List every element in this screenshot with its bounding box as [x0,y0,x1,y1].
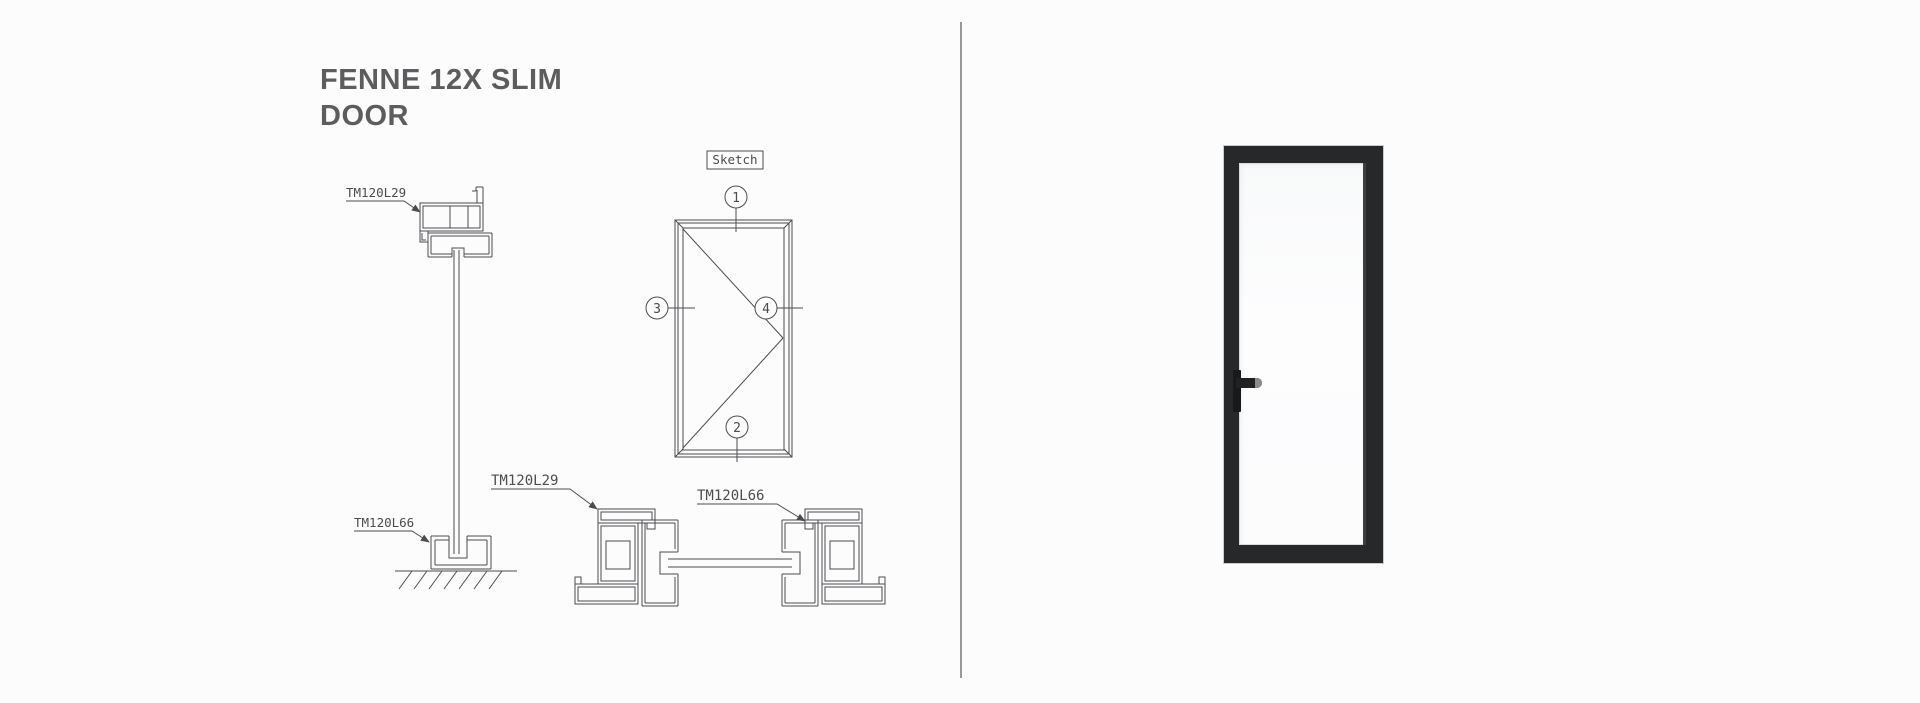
catalog-page: { "page": { "title_line1": "FENNE 12X SL… [0,0,1920,703]
horizontal-frame-profile-label: TM120L29 [491,473,558,489]
glass-pane-section [454,250,459,554]
callout-2: 2 [733,421,741,436]
ground-hatch [395,571,517,589]
vertical-floor-profile-label: TM120L66 [354,515,414,530]
right-frame-profile-section [805,509,885,604]
left-leaf-profile-section [642,520,678,606]
leader-line [354,531,429,542]
callout-4: 4 [762,302,770,317]
floor-channel-section [431,536,491,569]
product-door-image [1224,146,1383,563]
horizontal-section-drawing: TM120L29 TM120L66 [491,473,885,606]
leader-line [346,201,420,212]
callout-1: 1 [732,191,740,206]
left-frame-profile-section [575,509,655,604]
sketch-label: Sketch [712,152,757,167]
door-glass-panel [1239,163,1364,545]
door-frame-bevel [1363,163,1366,545]
leaf-top-profile-section [428,233,492,257]
sketch-diagram: Sketch 1 3 4 2 [646,151,803,462]
head-profile-section [420,187,483,242]
horizontal-leaf-profile-label: TM120L66 [697,488,764,504]
glass-pane-plan [668,559,792,567]
callout-3: 3 [653,302,661,317]
leader-line [491,489,597,509]
door-handle-plate [1233,370,1241,412]
door-handle-lever [1236,378,1262,388]
leader-line [697,504,805,521]
vertical-head-profile-label: TM120L29 [346,185,406,200]
door-swing-lines [683,229,783,448]
right-leaf-profile-section [782,520,818,606]
vertical-section-drawing: TM120L29 TM120L66 [346,185,517,589]
section-divider [960,22,962,678]
